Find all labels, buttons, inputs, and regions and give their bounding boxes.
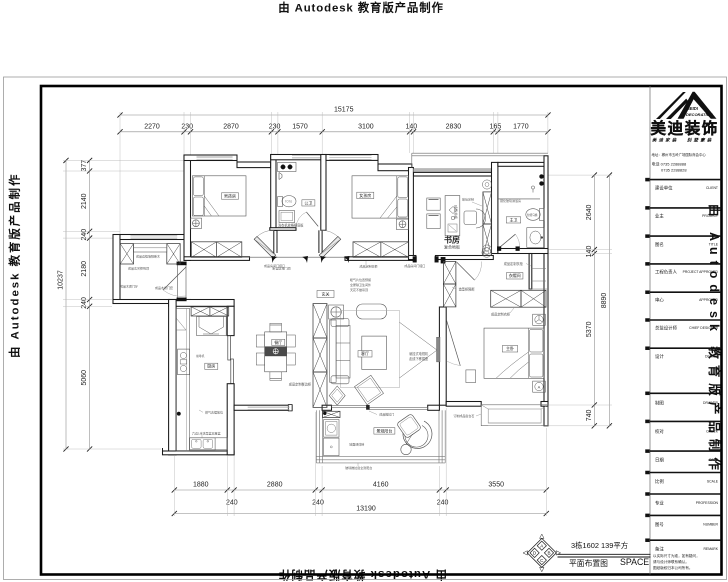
svg-text:衣帽间: 衣帽间 [509, 272, 521, 278]
svg-text:审心: 审心 [655, 297, 664, 304]
svg-text:240: 240 [226, 500, 238, 507]
svg-text:5370: 5370 [586, 321, 593, 337]
svg-text:订制成品窗台石: 订制成品窗台石 [453, 413, 474, 418]
svg-text:暖气片位置预留: 暖气片位置预留 [350, 277, 371, 282]
svg-text:成品玄关柜到顶: 成品玄关柜到顶 [128, 265, 149, 270]
svg-text:2270: 2270 [144, 123, 160, 130]
svg-text:2640: 2640 [586, 205, 593, 221]
svg-text:1880: 1880 [193, 482, 209, 489]
svg-text:走线下移插座: 走线下移插座 [409, 356, 429, 361]
svg-text:成品书桌: 成品书桌 [454, 205, 459, 219]
svg-text:377: 377 [81, 160, 88, 172]
svg-text:美 迪 家 装: 美 迪 家 装 [652, 138, 677, 143]
svg-text:钢化玻璃淋浴房: 钢化玻璃淋浴房 [500, 198, 521, 203]
svg-text:成品木质门套: 成品木质门套 [155, 285, 173, 290]
svg-text:卧室区域门洞: 卧室区域门洞 [273, 266, 291, 271]
svg-text:PROFESSION: PROFESSION [696, 501, 719, 505]
svg-text:公卫: 公卫 [304, 200, 312, 205]
svg-text:0735 2288828: 0735 2288828 [661, 168, 687, 173]
svg-text:APPROVED: APPROVED [699, 298, 718, 302]
svg-text:由 Autodesk 教育版产品制作: 由 Autodesk 教育版产品制作 [278, 1, 444, 15]
svg-text:DECORATION: DECORATION [686, 112, 713, 117]
svg-text:六边1米洗菜盆双星盆: 六边1米洗菜盆双星盆 [192, 430, 221, 435]
svg-text:成品定制餐边柜: 成品定制餐边柜 [289, 382, 312, 387]
svg-text:3100: 3100 [358, 123, 374, 130]
svg-text:成品房间门垭口: 成品房间门垭口 [404, 263, 425, 268]
svg-text:NUMBER: NUMBER [703, 523, 718, 527]
svg-text:SCALE: SCALE [707, 480, 719, 484]
svg-text:图纸版权归本公司所有。: 图纸版权归本公司所有。 [653, 565, 693, 570]
svg-text:总监设计师: 总监设计师 [655, 325, 678, 332]
svg-text:13190: 13190 [356, 506, 376, 513]
svg-text:备注: 备注 [655, 546, 664, 553]
svg-text:1770: 1770 [513, 123, 529, 130]
svg-text:SPACE: SPACE [620, 557, 649, 567]
svg-text:美迪装饰: 美迪装饰 [651, 119, 719, 138]
svg-text:PROJECT: PROJECT [702, 214, 718, 218]
svg-text:DATE: DATE [709, 458, 719, 462]
svg-text:230: 230 [181, 123, 193, 130]
svg-text:TOTO: TOTO [285, 200, 292, 204]
svg-text:女孩房: 女孩房 [359, 192, 371, 198]
svg-text:图名: 图名 [655, 241, 664, 248]
svg-text:2880: 2880 [267, 482, 283, 489]
svg-text:DESIGN: DESIGN [705, 355, 719, 359]
svg-text:悬挂式电视机: 悬挂式电视机 [409, 351, 429, 356]
svg-text:TITLE: TITLE [709, 243, 719, 247]
svg-text:DRAWER: DRAWER [703, 401, 718, 405]
svg-text:地面通体砖: 地面通体砖 [349, 441, 364, 446]
svg-text:书房: 书房 [444, 235, 460, 245]
svg-text:以实际尺寸为准，如有疑问，: 以实际尺寸为准，如有疑问， [653, 553, 700, 558]
svg-text:校对: 校对 [655, 428, 664, 435]
svg-text:地址：郴州市五岭广场国际商会中心: 地址：郴州市五岭广场国际商会中心 [652, 152, 707, 157]
svg-text:燃气表摆放位: 燃气表摆放位 [205, 410, 223, 415]
svg-text:165: 165 [490, 123, 502, 130]
svg-text:CLIENT: CLIENT [706, 186, 718, 190]
svg-text:PROJECT APPROVED: PROJECT APPROVED [683, 270, 719, 274]
svg-text:餐厅: 餐厅 [274, 339, 282, 345]
svg-text:复合地板: 复合地板 [444, 244, 460, 250]
svg-text:MEIDI: MEIDI [686, 106, 699, 111]
svg-text:740: 740 [586, 409, 593, 421]
svg-text:成品边框墙隔断木: 成品边框墙隔断木 [136, 254, 160, 259]
svg-text:咖啡机: 咖啡机 [196, 354, 205, 358]
svg-text:比例: 比例 [655, 478, 664, 485]
svg-text:天花不做吊顶: 天花不做吊顶 [350, 287, 368, 292]
svg-text:成品木质门厅: 成品木质门厅 [120, 284, 138, 289]
svg-text:全屋除卫生间外: 全屋除卫生间外 [350, 282, 371, 287]
svg-text:B: B [547, 551, 550, 556]
svg-text:A: A [538, 384, 541, 389]
svg-text:1570: 1570 [292, 123, 308, 130]
svg-text:男孩房: 男孩房 [224, 192, 236, 198]
svg-text:主卧: 主卧 [506, 345, 514, 351]
svg-text:2870: 2870 [223, 123, 239, 130]
svg-text:设计: 设计 [655, 353, 664, 360]
svg-text:CHIEF DESIGNER: CHIEF DESIGNER [689, 326, 718, 330]
svg-text:3栋1602 139平方: 3栋1602 139平方 [571, 541, 628, 550]
svg-text:成品定制衣柜: 成品定制衣柜 [504, 261, 524, 266]
svg-text:240: 240 [81, 229, 88, 241]
svg-text:景观阳台: 景观阳台 [376, 427, 392, 433]
svg-text:10237: 10237 [58, 270, 65, 290]
svg-text:CHECK: CHECK [706, 430, 719, 434]
svg-text:2140: 2140 [81, 193, 88, 209]
svg-text:专业: 专业 [655, 500, 664, 507]
svg-text:玄关: 玄关 [322, 290, 330, 296]
svg-text:玻璃推拉窗全封阳台: 玻璃推拉窗全封阳台 [345, 465, 372, 470]
svg-text:成品定制衣柜: 成品定制衣柜 [491, 311, 511, 316]
svg-text:玻璃定制: 玻璃定制 [462, 197, 474, 202]
svg-text:140: 140 [586, 246, 593, 258]
svg-text:由 Autodesk 教育版产品制作: 由 Autodesk 教育版产品制作 [8, 173, 22, 358]
svg-text:造型柜隔断: 造型柜隔断 [459, 287, 476, 292]
svg-text:240: 240 [81, 297, 88, 309]
svg-text:140: 140 [405, 123, 417, 130]
svg-text:成品定制衣柜: 成品定制衣柜 [360, 264, 378, 269]
svg-text:15175: 15175 [334, 107, 354, 114]
svg-text:5060: 5060 [81, 370, 88, 386]
svg-text:3550: 3550 [488, 482, 504, 489]
svg-text:洗衣机放格栅底板: 洗衣机放格栅底板 [278, 223, 304, 228]
svg-text:2830: 2830 [446, 123, 462, 130]
svg-text:2180: 2180 [81, 261, 88, 277]
svg-text:请与设计师联系确认。: 请与设计师联系确认。 [653, 559, 689, 564]
svg-text:主卫: 主卫 [510, 216, 518, 222]
svg-text:240: 240 [437, 500, 449, 507]
svg-text:客厅: 客厅 [361, 350, 369, 356]
svg-text:建设单位: 建设单位 [655, 185, 673, 192]
svg-text:电话 0735 2288888: 电话 0735 2288888 [652, 161, 687, 167]
svg-text:厨房: 厨房 [207, 363, 215, 369]
svg-text:平面布置图: 平面布置图 [569, 558, 608, 568]
svg-text:业主: 业主 [655, 213, 664, 219]
svg-text:4160: 4160 [373, 482, 389, 489]
svg-text:别 墅 豪 装: 别 墅 豪 装 [686, 138, 712, 143]
svg-text:制图: 制图 [655, 400, 664, 407]
svg-text:智能马桶: 智能马桶 [527, 213, 538, 217]
svg-text:REMARK: REMARK [703, 547, 718, 551]
svg-text:成品推拉门: 成品推拉门 [379, 412, 394, 417]
svg-text:230: 230 [269, 123, 281, 130]
svg-text:工程负责人: 工程负责人 [655, 269, 678, 276]
svg-text:8890: 8890 [601, 293, 608, 309]
